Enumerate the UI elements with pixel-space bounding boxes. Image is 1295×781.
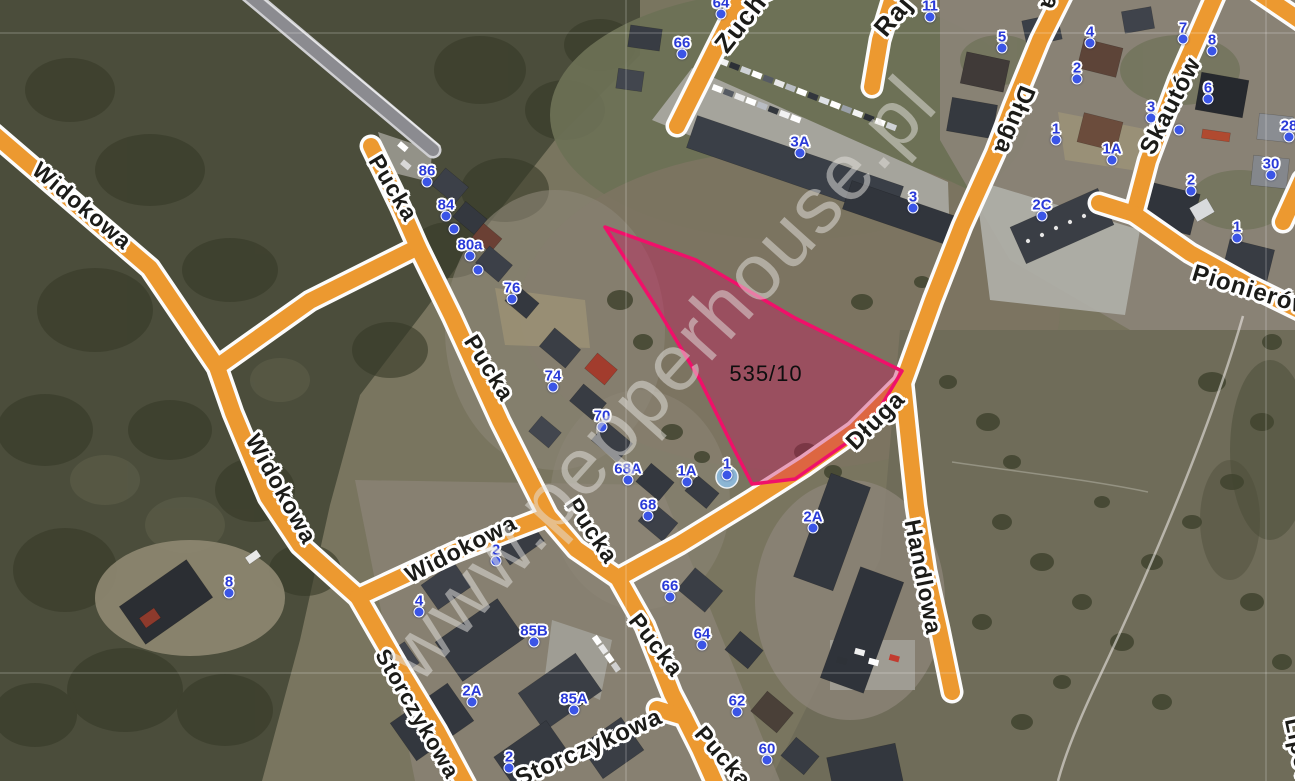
marker-dot-icon bbox=[682, 477, 693, 488]
marker-dot-icon bbox=[677, 49, 688, 60]
marker-dot-icon bbox=[449, 224, 460, 235]
marker-dot-icon bbox=[997, 43, 1008, 54]
marker-dot-icon bbox=[1072, 74, 1083, 85]
marker-dot-icon bbox=[1266, 170, 1277, 181]
marker-dot-icon bbox=[722, 470, 733, 481]
marker-dot-icon bbox=[762, 755, 773, 766]
marker-dot-icon bbox=[1107, 155, 1118, 166]
marker-dot-icon bbox=[795, 148, 806, 159]
marker-dot-icon bbox=[414, 607, 425, 618]
marker-dot-icon bbox=[224, 588, 235, 599]
marker-dot-icon bbox=[697, 640, 708, 651]
marker-dot-icon bbox=[1203, 94, 1214, 105]
parcel-number-label: 535/10 bbox=[729, 361, 802, 387]
marker-dot-icon bbox=[623, 475, 634, 486]
marker-dot-icon bbox=[1178, 34, 1189, 45]
marker-dot-icon bbox=[1085, 38, 1096, 49]
marker-dot-icon bbox=[491, 556, 502, 567]
marker-dot-icon bbox=[467, 697, 478, 708]
marker-dot-icon bbox=[529, 637, 540, 648]
map-canvas[interactable]: WidokowaWidokowaWidokowaStorczykowaStorc… bbox=[0, 0, 1295, 781]
marker-dot-icon bbox=[548, 382, 559, 393]
marker-dot-icon bbox=[597, 422, 608, 433]
marker-dot-icon bbox=[1207, 46, 1218, 57]
marker-dot-icon bbox=[473, 265, 484, 276]
marker-dot-icon bbox=[422, 177, 433, 188]
marker-dot-icon bbox=[732, 707, 743, 718]
marker-dot-icon bbox=[441, 211, 452, 222]
marker-dot-icon bbox=[1232, 233, 1243, 244]
marker-dot-icon bbox=[808, 523, 819, 534]
marker-dot-icon bbox=[908, 203, 919, 214]
map-base-layer bbox=[0, 0, 1295, 781]
marker-dot-icon bbox=[507, 294, 518, 305]
marker-dot-icon bbox=[925, 12, 936, 23]
marker-dot-icon bbox=[1037, 211, 1048, 222]
marker-dot-icon bbox=[465, 251, 476, 262]
marker-dot-icon bbox=[1284, 132, 1295, 143]
marker-dot-icon bbox=[643, 511, 654, 522]
marker-dot-icon bbox=[569, 705, 580, 716]
marker-dot-icon bbox=[1051, 135, 1062, 146]
marker-dot-icon bbox=[1186, 186, 1197, 197]
marker-dot-icon bbox=[665, 592, 676, 603]
